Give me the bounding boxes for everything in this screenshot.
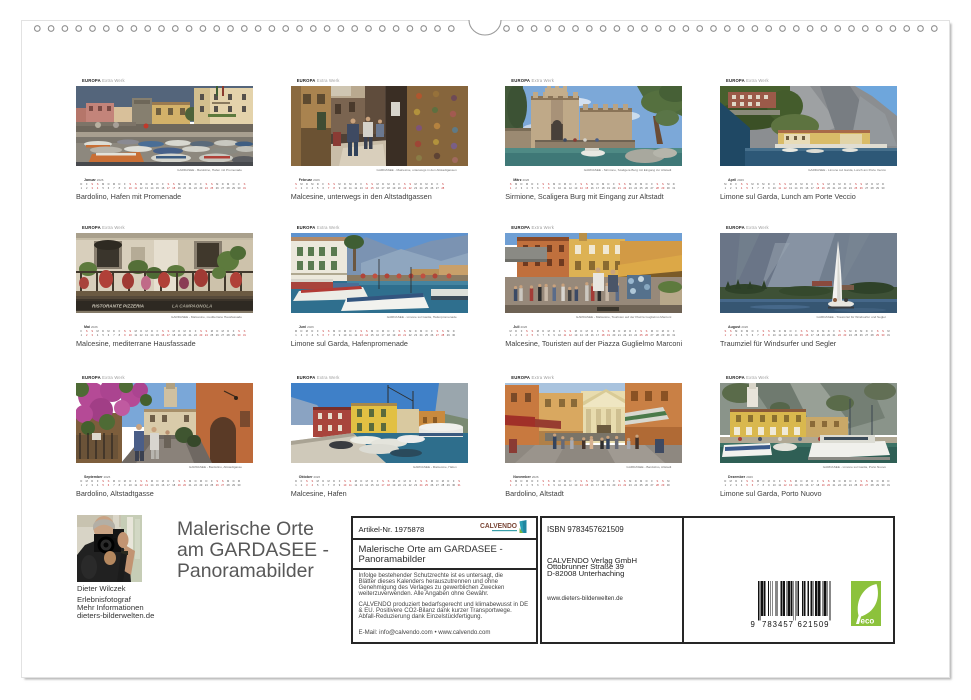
svg-text:783457: 783457 bbox=[762, 620, 793, 627]
svg-text:9: 9 bbox=[751, 620, 755, 627]
svg-text:eco: eco bbox=[861, 617, 875, 626]
svg-text:CALVENDO: CALVENDO bbox=[480, 521, 517, 530]
svg-text:LA CAMPAGNOLA: LA CAMPAGNOLA bbox=[172, 304, 212, 309]
svg-text:621509: 621509 bbox=[798, 620, 829, 627]
svg-text:RISTORANTE PIZZERIA: RISTORANTE PIZZERIA bbox=[92, 304, 144, 309]
